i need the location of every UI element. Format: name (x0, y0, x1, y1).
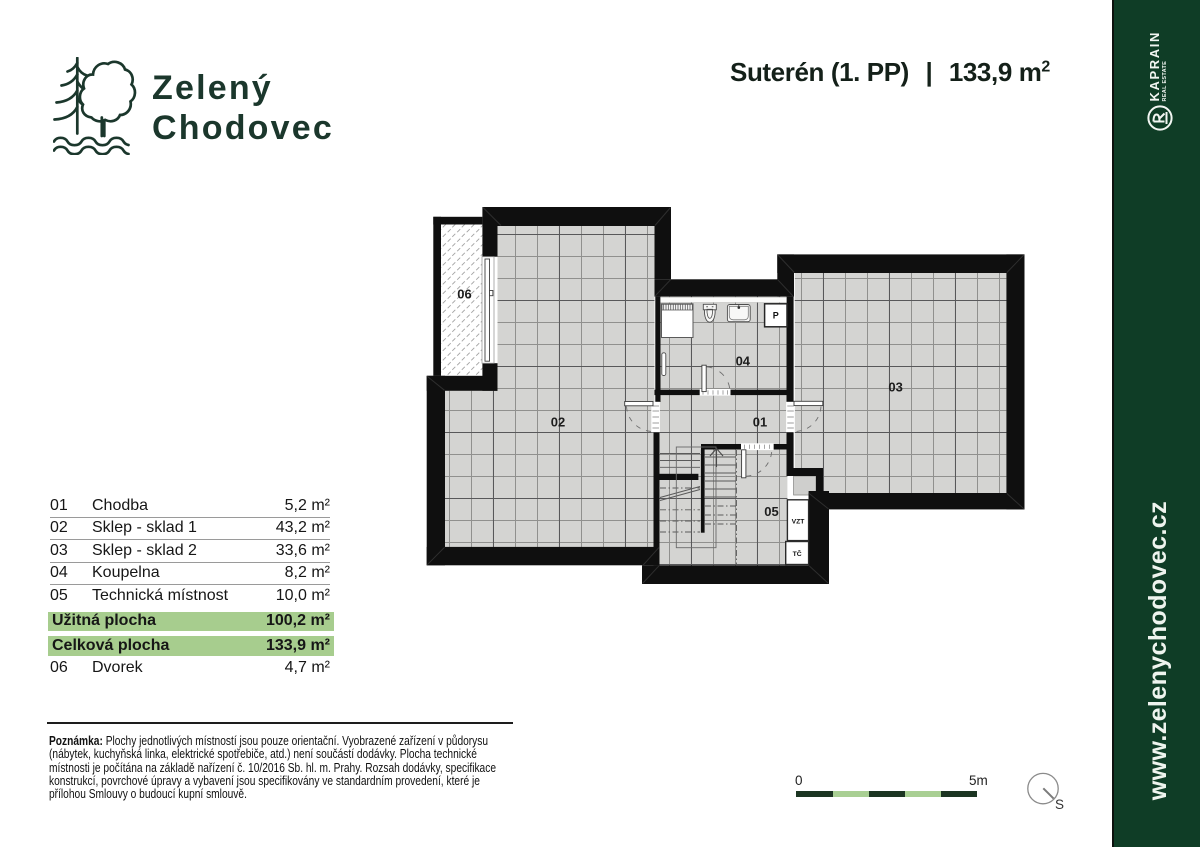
svg-text:04: 04 (736, 354, 751, 369)
svg-text:TČ: TČ (793, 549, 802, 558)
svg-text:06: 06 (457, 287, 471, 302)
svg-text:01: 01 (753, 415, 767, 430)
svg-text:P: P (773, 311, 779, 321)
svg-text:03: 03 (888, 380, 902, 395)
svg-text:VZT: VZT (792, 519, 806, 526)
svg-text:05: 05 (764, 504, 778, 519)
svg-text:02: 02 (551, 415, 565, 430)
svg-text:S: S (1055, 797, 1064, 812)
